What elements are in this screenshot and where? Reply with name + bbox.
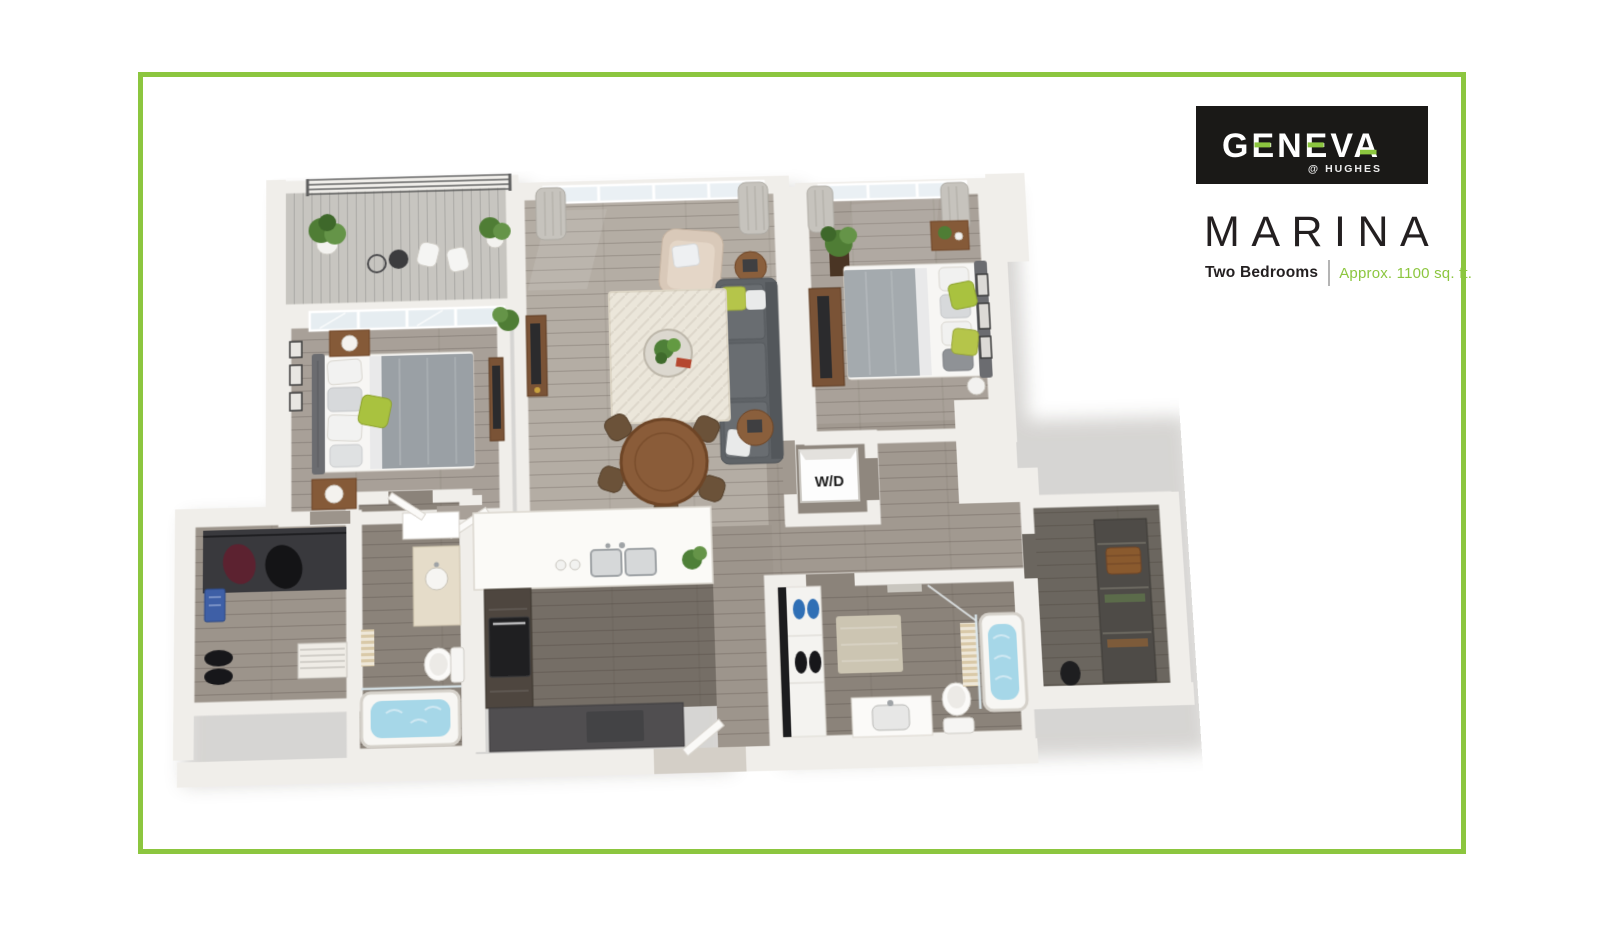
bath2-tub	[980, 613, 1028, 711]
green-pillow3	[951, 328, 979, 356]
kitchen-sink	[591, 549, 622, 576]
logo-green-bar-e2	[1308, 142, 1324, 147]
logo-green-bar-e1	[1255, 142, 1271, 147]
geneva-logo-art: GENEVA @ HUGHES	[1196, 106, 1428, 184]
lamp-top	[342, 335, 358, 351]
lamp-bottom	[325, 485, 343, 504]
wall-art-frames	[290, 342, 302, 411]
bath1-mirror	[403, 512, 460, 540]
bath1-sink	[425, 567, 447, 590]
master-window-wall	[310, 307, 505, 331]
wd-closet: W/D	[799, 449, 859, 502]
towel-shelf	[298, 642, 347, 678]
stove	[489, 617, 531, 677]
coffee-table	[644, 329, 693, 377]
entry-bench	[586, 710, 644, 743]
page: { "page": { "background": "#ffffff", "bo…	[0, 0, 1600, 932]
area-label: Approx. 1100 sq. ft.	[1339, 265, 1472, 282]
living-tv	[530, 323, 541, 384]
wd-label: W/D	[815, 474, 845, 491]
subtitle-divider	[1328, 260, 1330, 286]
plan-title: MARINA	[1204, 208, 1454, 257]
logo-green-bar-a	[1360, 150, 1377, 155]
green-pillow	[357, 394, 392, 429]
master-tv	[492, 366, 501, 429]
armchair	[658, 228, 724, 298]
plan-subtitle: Two Bedrooms Approx. 1100 sq. ft.	[1205, 258, 1472, 288]
bath1-tub	[361, 691, 460, 748]
bath1-toilet	[424, 647, 464, 683]
closet-basket	[1106, 547, 1142, 574]
green-pillow2	[947, 280, 978, 310]
bedrooms-label: Two Bedrooms	[1205, 264, 1318, 282]
master-bed	[312, 350, 475, 475]
logo-subbrand: @ HUGHES	[1308, 163, 1382, 175]
bath2-sink	[872, 705, 910, 731]
bath2-light	[887, 583, 922, 592]
bedroom2-vase	[967, 377, 986, 395]
floor-plan: W/D	[156, 154, 1203, 805]
floor-plan-art: W/D	[156, 154, 1203, 805]
bedroom2-bed	[844, 261, 993, 382]
kitchen-counter	[473, 507, 713, 590]
geneva-logo: GENEVA @ HUGHES	[1196, 106, 1428, 184]
geneva-wordmark: GENEVA	[1222, 127, 1381, 165]
dining-table	[620, 418, 709, 506]
side-table-decor	[743, 259, 758, 272]
